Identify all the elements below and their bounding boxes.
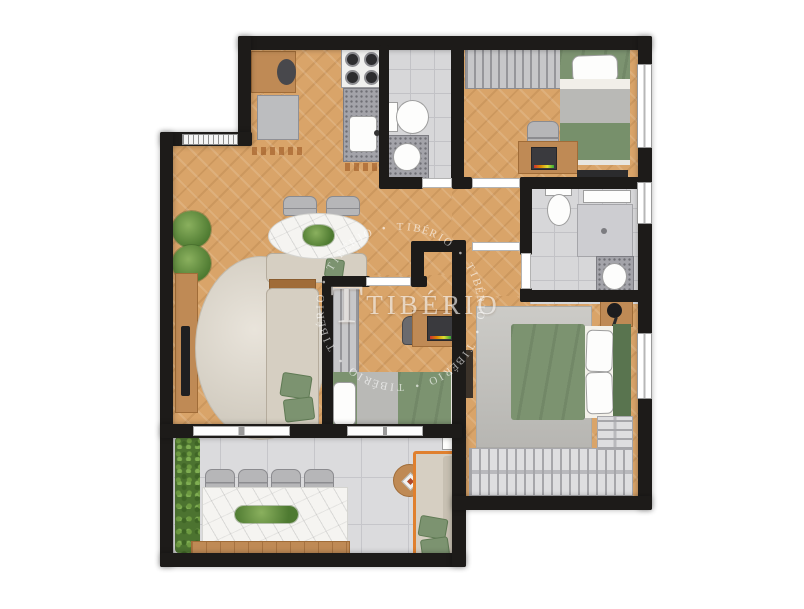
bedroom2-door [366, 277, 411, 286]
wall-master-bottom [452, 496, 652, 510]
bath1-basin [393, 143, 421, 171]
master-pillow-bottom [585, 372, 613, 415]
tv [181, 326, 190, 396]
bedroom1-laptop [531, 147, 557, 170]
living-plant-1 [172, 211, 211, 248]
master-pillow-top [585, 330, 613, 373]
bath2-drain [601, 228, 607, 234]
kitchen-cabinet-row [252, 147, 302, 155]
bedroom1-sheet [560, 79, 630, 89]
master-closet-right [597, 416, 633, 450]
wall-bedroom2-right [452, 240, 466, 430]
living-balcony-sliding-door [193, 426, 290, 436]
wall-hall-top-b [452, 177, 472, 189]
bedroom1-window [637, 64, 652, 148]
wall-bath2-left-upper [520, 177, 532, 255]
wall-hall-top-c [520, 177, 652, 189]
master-suite-door [472, 242, 520, 251]
bedroom2-blanket-gray [357, 372, 398, 432]
bedroom2-balcony-sliding-door [347, 426, 423, 436]
stove-burner [366, 54, 377, 65]
kitchen-sink [349, 116, 377, 152]
wall-top [238, 36, 652, 50]
master-door-leaf [465, 350, 473, 398]
wall-left [160, 132, 173, 567]
facade-vent [182, 134, 238, 145]
toilet2-bowl [547, 194, 571, 226]
stove [341, 49, 383, 88]
master-headboard [613, 324, 631, 420]
bedroom1-blanket-gray [560, 89, 630, 123]
master-closet-bottom [469, 448, 633, 496]
sofa-pillow-2 [283, 396, 316, 422]
bath1-door [422, 178, 452, 188]
wall-hall-top-a [379, 177, 423, 189]
bedroom2-laptop [427, 316, 454, 341]
bedroom1-door [472, 178, 520, 188]
wall-upper-left-vertical [238, 36, 251, 142]
wall-bath1-bedroom1 [451, 36, 464, 188]
balcony-vertical-garden [175, 437, 200, 553]
dining-centerpiece [303, 225, 334, 246]
floor-plan-image: T TIBÉRIO TIBÉRIO • TIBÉRIO • TIBÉRIO • … [0, 0, 804, 609]
bath2-basin [602, 263, 627, 290]
toilet1-bowl [396, 100, 429, 134]
balcony-table-runner [235, 506, 298, 523]
stove-burner [366, 72, 377, 83]
fridge [257, 95, 299, 140]
master-window [637, 333, 652, 399]
wall-bottom [160, 553, 466, 567]
wall-bath2-bottom [520, 290, 652, 302]
bedroom2-pillow [333, 382, 356, 426]
wall-bedroom2-left [322, 276, 333, 432]
bath2-niche [583, 190, 631, 203]
kitchen-round-sink [277, 59, 296, 85]
stove-burner [347, 54, 358, 65]
bath2-window [637, 182, 652, 224]
wall-desk-nook-top [411, 241, 456, 252]
bedroom1-wardrobe [465, 49, 561, 89]
master-bed-duvet [511, 324, 585, 420]
stove-burner [347, 72, 358, 83]
bedroom2-blanket-green [398, 372, 454, 432]
bath2-door [521, 253, 531, 289]
wall-kitchen-bath1 [379, 45, 389, 185]
